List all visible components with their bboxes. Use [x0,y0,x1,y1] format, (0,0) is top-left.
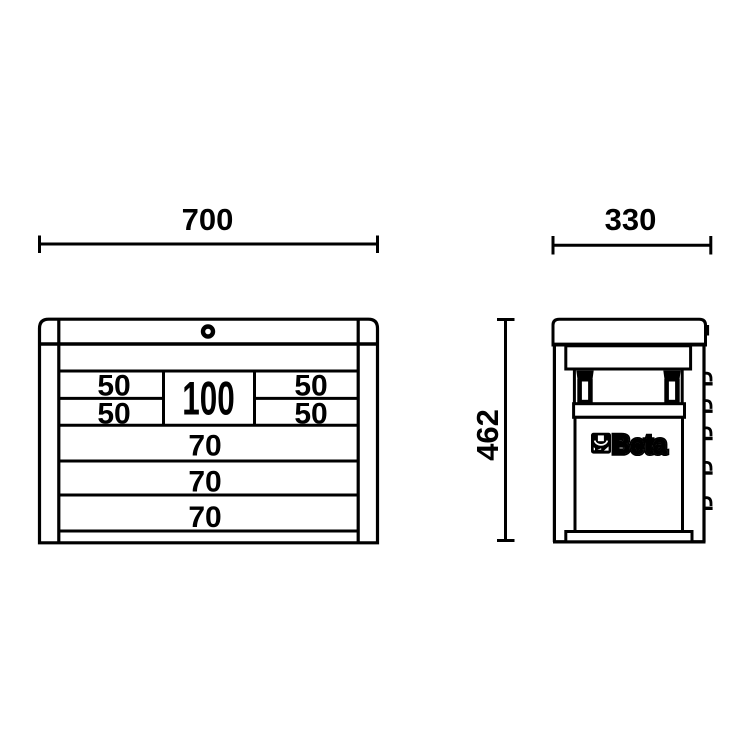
svg-text:70: 70 [188,501,221,534]
svg-text:70: 70 [188,430,221,463]
svg-text:700: 700 [182,202,234,237]
svg-text:50: 50 [294,398,327,431]
svg-text:Beta: Beta [612,429,668,459]
svg-text:50: 50 [97,398,130,431]
svg-text:330: 330 [605,202,657,237]
svg-text:462: 462 [470,409,505,461]
svg-text:70: 70 [188,465,221,498]
svg-text:100: 100 [182,372,235,425]
